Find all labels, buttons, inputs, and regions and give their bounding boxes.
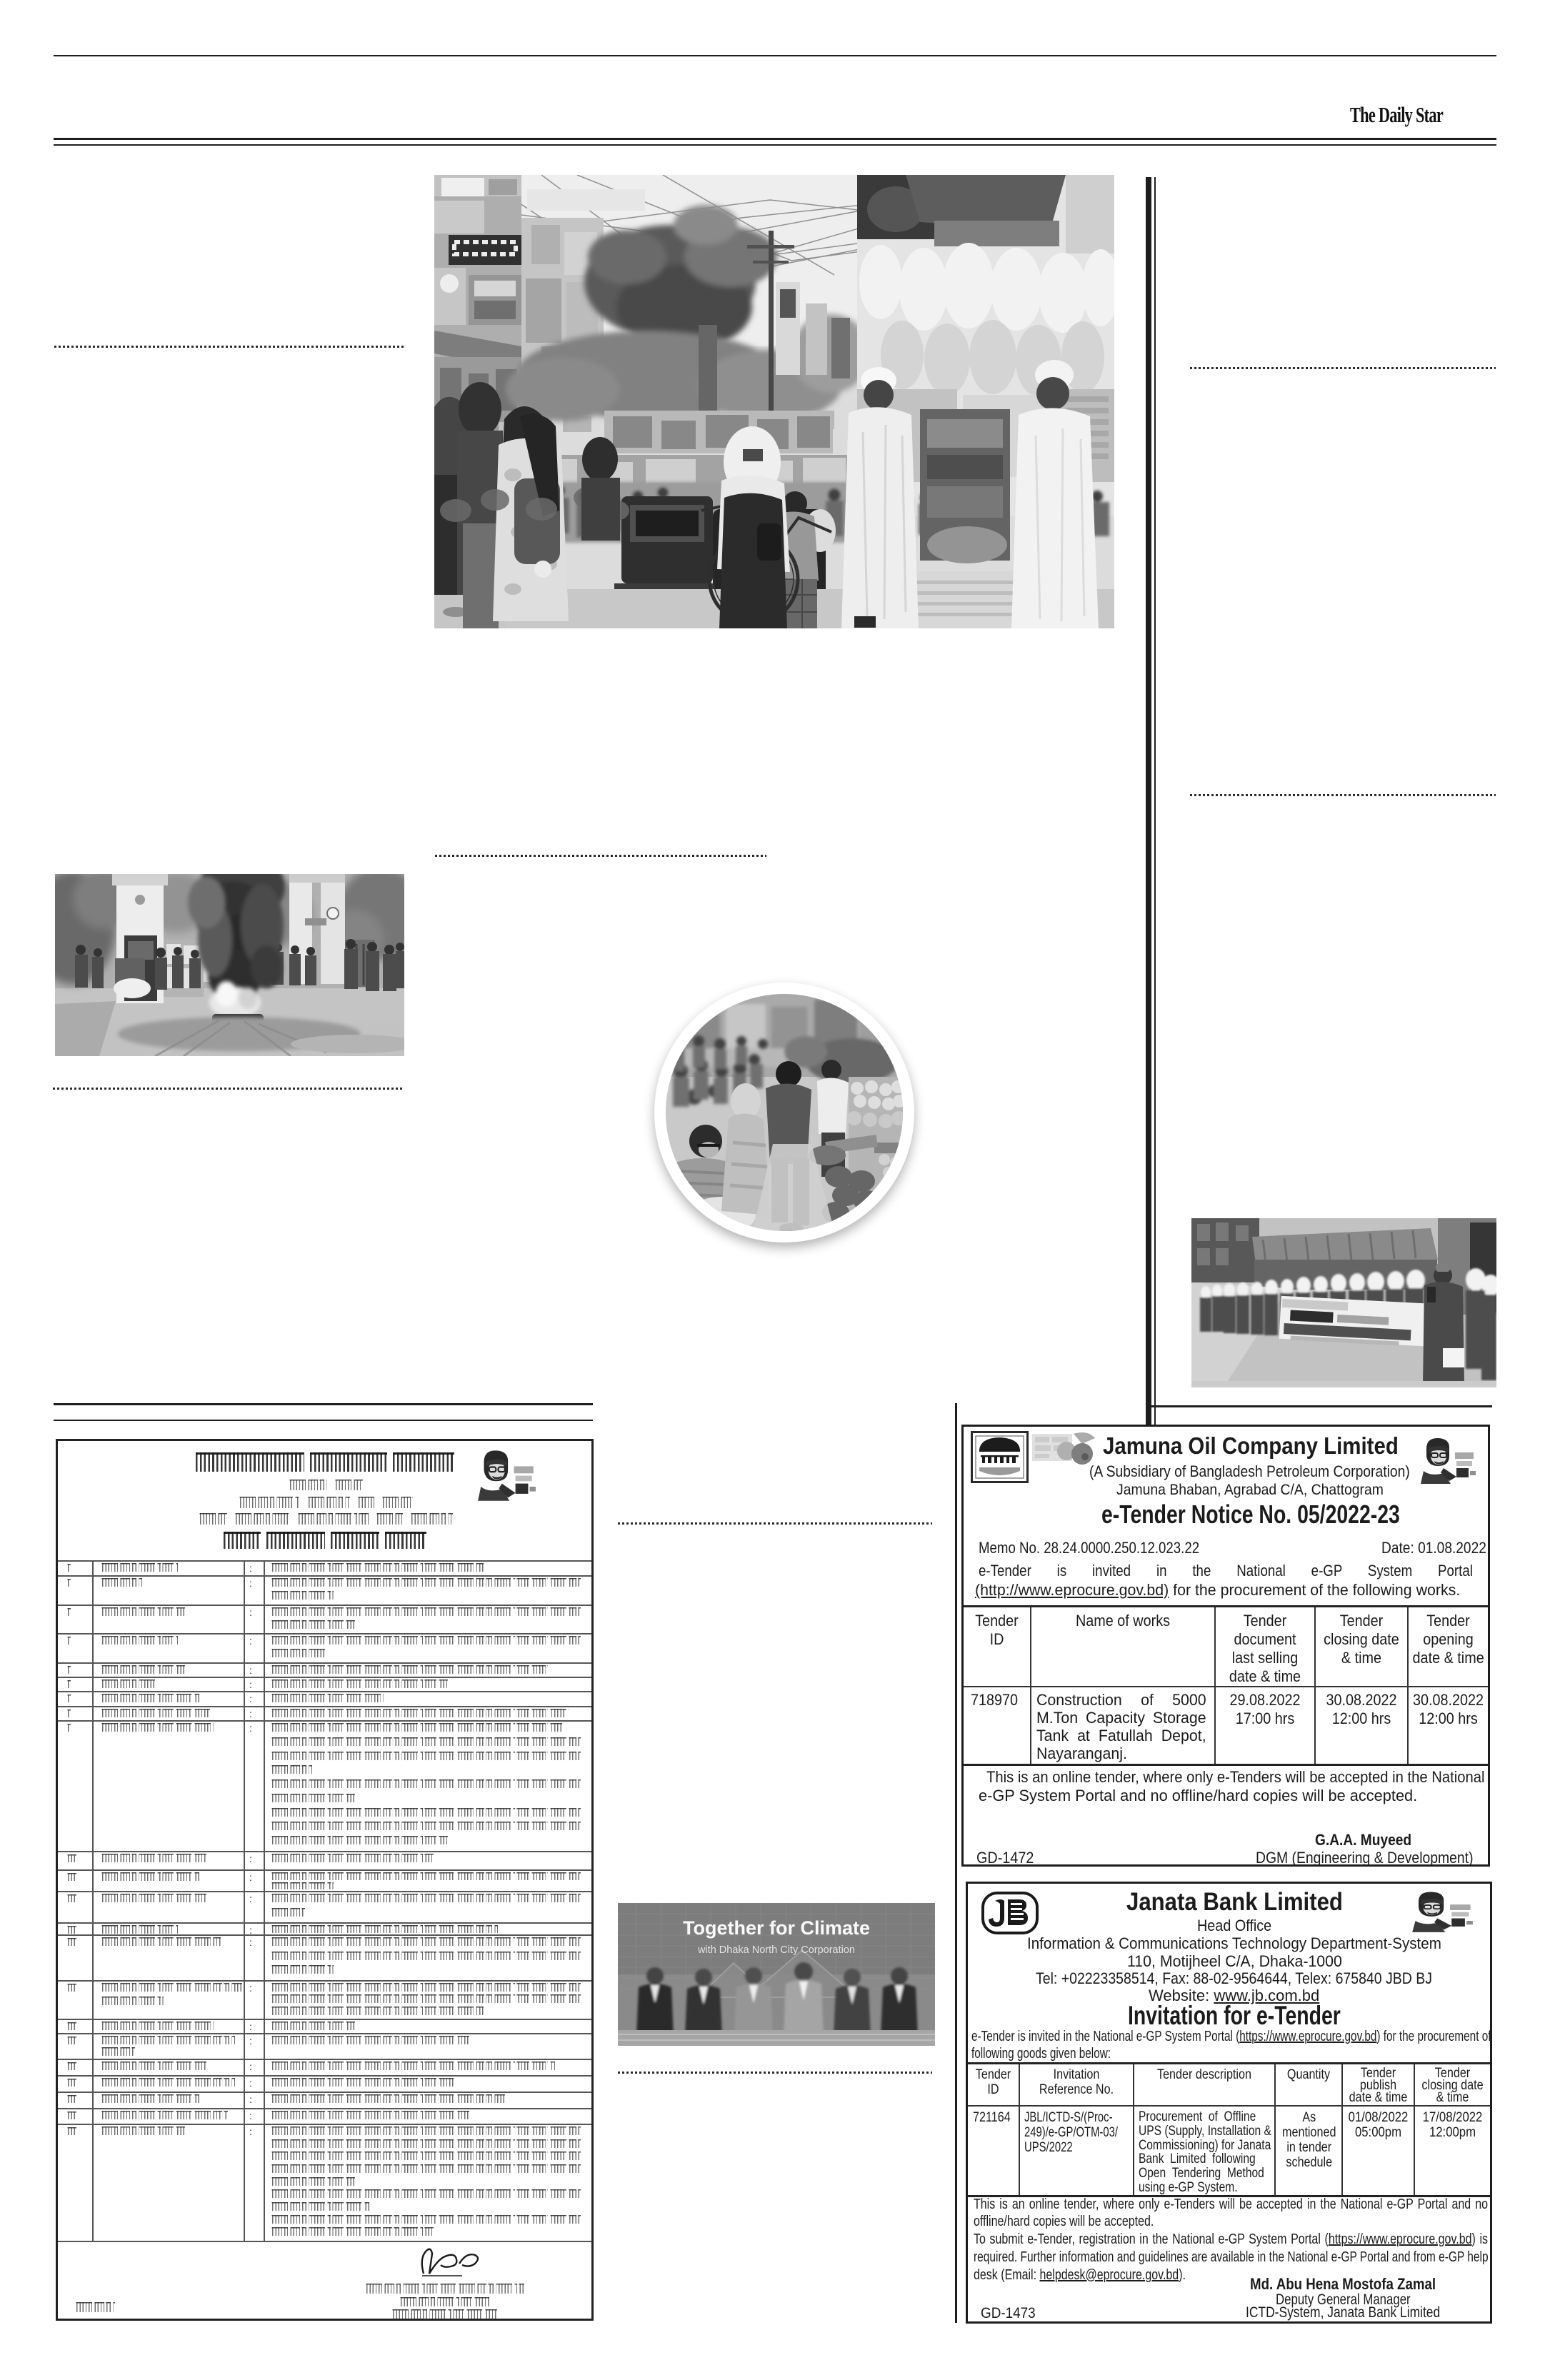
svg-text:with Dhaka North City Corporat: with Dhaka North City Corporation bbox=[697, 1944, 855, 1956]
svg-text:Together for Climate: Together for Climate bbox=[683, 1917, 870, 1939]
